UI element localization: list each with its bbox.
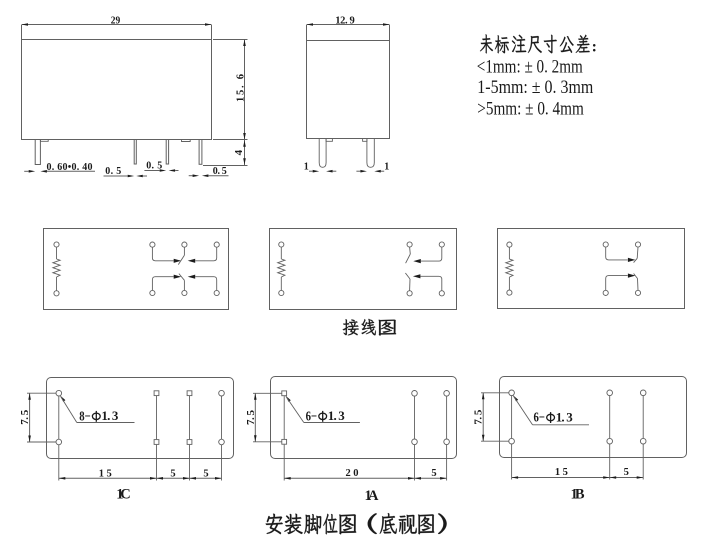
svg-text:1: 1 [384,161,389,172]
svg-text:6−: 6− [306,409,318,424]
svg-text:7. 5: 7. 5 [472,409,484,425]
svg-text:5: 5 [431,468,436,479]
svg-text:0. 5: 0. 5 [146,160,162,171]
svg-text:0. 5: 0. 5 [105,166,121,177]
svg-text:12. 9: 12. 9 [335,16,355,27]
svg-text:5: 5 [203,468,208,479]
svg-text:>5mm: ± 0. 4mm: >5mm: ± 0. 4mm [477,99,584,120]
svg-text:7. 5: 7. 5 [19,409,31,425]
svg-text:6−: 6− [534,411,546,426]
svg-text:0. 60•0. 40: 0. 60•0. 40 [47,162,93,173]
svg-text:4: 4 [233,149,245,155]
svg-text:1B: 1B [571,487,585,503]
svg-text:15. 6: 15. 6 [236,74,247,102]
svg-text:5: 5 [170,468,175,479]
svg-text:8−: 8− [79,409,91,424]
svg-text:1. 3: 1. 3 [556,409,574,424]
svg-text:1. 3: 1. 3 [101,408,119,423]
svg-text:1: 1 [304,161,309,172]
svg-text:7. 5: 7. 5 [245,410,257,426]
svg-text:<1mm: ± 0. 2mm: <1mm: ± 0. 2mm [477,57,583,78]
svg-text:1A: 1A [365,488,380,504]
svg-text:1C: 1C [116,487,131,503]
svg-text:1. 3: 1. 3 [328,408,346,423]
svg-text:29: 29 [111,16,121,27]
svg-text:5: 5 [624,467,629,478]
svg-text::: : [592,39,597,56]
svg-text:0. 5: 0. 5 [213,166,227,177]
svg-text:1-5mm: ± 0. 3mm: 1-5mm: ± 0. 3mm [477,77,593,98]
